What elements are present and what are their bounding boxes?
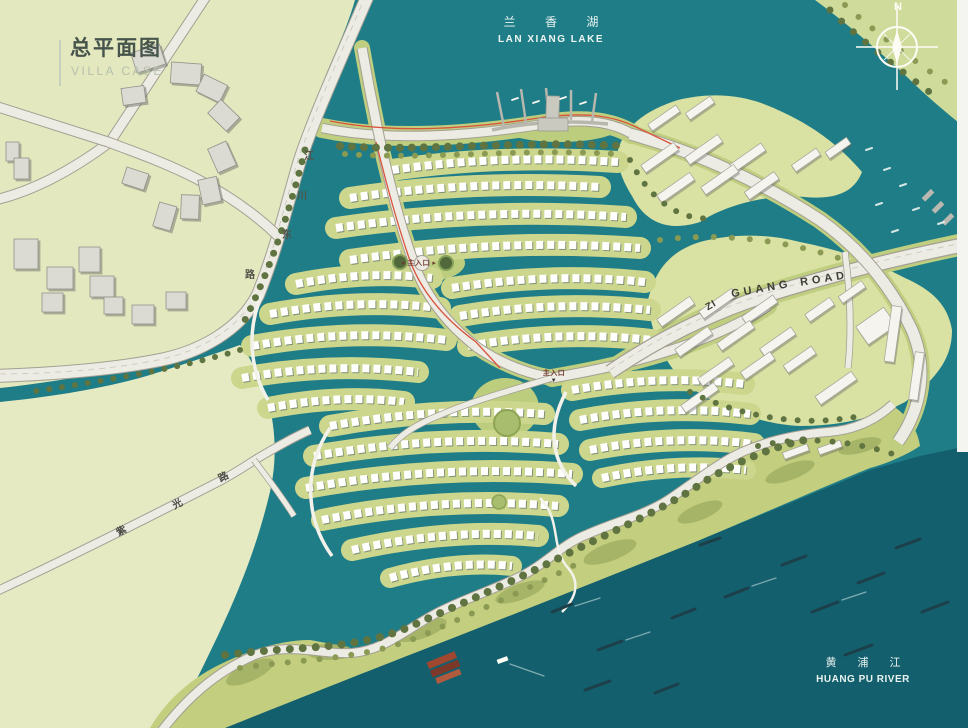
- page-subtitle: VILLA CASE: [71, 65, 164, 77]
- main-entrance-label-north: ◂ 主入口 ▸: [401, 260, 436, 267]
- site-plan: 总平面图 VILLA CASE 兰 香 湖 LAN XIANG LAKE 黄 浦…: [0, 0, 968, 728]
- main-entrance-text: 主入口: [407, 260, 430, 267]
- river-name-cn: 黄 浦 江: [807, 658, 928, 669]
- road-jiangchuan-char: 路: [245, 271, 255, 281]
- river-label: 黄 浦 江 HUANG PU RIVER: [798, 658, 928, 685]
- title-divider: [59, 40, 61, 86]
- lake-label: 兰 香 湖 LAN XIANG LAKE: [486, 16, 616, 45]
- page-title: 总平面图: [70, 38, 162, 59]
- road-jiangchuan-char: 东: [282, 231, 292, 241]
- road-jiangchuan-char: 川: [297, 192, 307, 202]
- river-name-en: HUANG PU RIVER: [798, 675, 928, 685]
- arrow-right-icon: ▸: [432, 260, 436, 267]
- master-plan-drawing: [0, 0, 968, 728]
- main-entrance-label-south: 主入口▼: [539, 370, 569, 384]
- main-entrance-text: 主入口: [543, 370, 566, 377]
- road-jiangchuan-char: 江: [304, 152, 314, 162]
- page-margin: [957, 0, 968, 452]
- lake-name-en: LAN XIANG LAKE: [486, 35, 616, 45]
- arrow-left-icon: ◂: [401, 260, 405, 267]
- arrow-down-icon: ▼: [539, 378, 569, 384]
- lake-name-cn: 兰 香 湖: [499, 16, 616, 28]
- compass-north-label: N: [890, 2, 906, 13]
